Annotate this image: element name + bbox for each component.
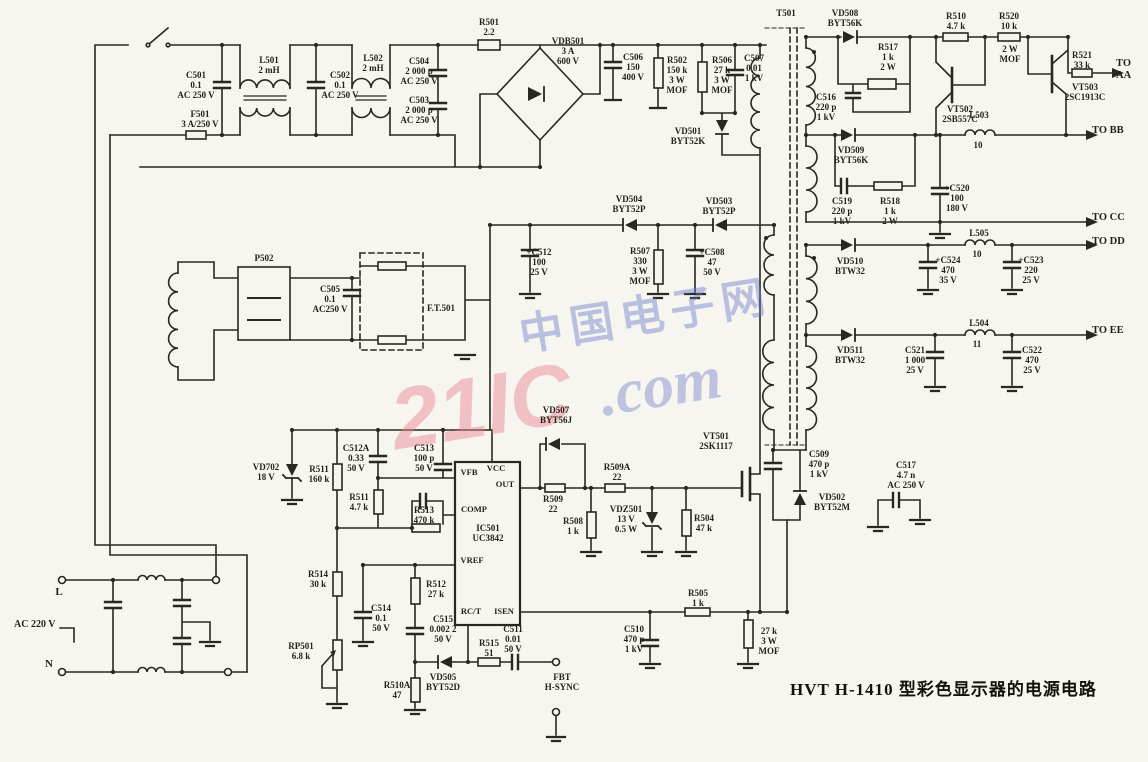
capacitor-plates: [105, 62, 1020, 669]
label-r521: R521 33 k: [1072, 50, 1092, 70]
wires: [60, 28, 1112, 735]
label-l504: L504: [969, 318, 989, 328]
label-vd501: VD501 BYT52K: [671, 126, 706, 146]
label-c521: C521 1 000 25 V: [905, 345, 925, 375]
label-r513: R513 470 k: [414, 505, 435, 525]
label-pin-rct: RC/T: [461, 607, 481, 617]
label-c513: C513 100 p 50 V: [414, 443, 435, 473]
label-l504-val: 11: [973, 339, 982, 349]
schematic-caption: HVT H-1410 型彩色显示器的电源电路: [790, 681, 1097, 700]
label-vd702: VD702 18 V: [253, 462, 280, 482]
label-l505: L505: [969, 228, 989, 238]
label-c512: +C512 100 25 V: [526, 247, 551, 277]
label-r514: R514 30 k: [308, 569, 328, 589]
label-c514: C514 0.1 50 V: [371, 603, 391, 633]
label-vd507: VD507 BYT56J: [540, 405, 572, 425]
label-l505-val: 10: [973, 249, 982, 259]
label-r502: R502 150 k 3 W MOF: [667, 55, 688, 95]
label-r520: R520 10 k: [999, 11, 1019, 31]
transistor-symbols: [742, 56, 1052, 500]
schematic-page: C501 0.1 AC 250 VF501 3 A/250 VL501 2 mH…: [0, 0, 1148, 762]
label-r515: R515 51: [479, 638, 499, 658]
label-vd502: VD502 BYT52M: [814, 492, 850, 512]
label-term-l: L: [55, 586, 62, 598]
label-r518: R518 1 k 2 W: [880, 196, 900, 226]
label-vt501: VT501 2SK1117: [699, 431, 733, 451]
label-rp501: RP501 6.8 k: [288, 641, 314, 661]
label-pin-vref: VREF: [460, 556, 483, 566]
label-p502: P502: [255, 253, 274, 263]
label-c509: C509 470 p 1 kV: [809, 449, 830, 479]
label-r509: R509 22: [543, 494, 563, 514]
label-c508: +C508 47 50 V: [699, 247, 724, 277]
label-vdz501: VDZ501 13 V 0.5 W: [610, 504, 643, 534]
label-fbt: FBT H-SYNC: [545, 672, 580, 692]
label-c502: C502 0.1 AC 250 V: [321, 70, 358, 100]
label-c507: C507 0.01 1 kV: [744, 53, 764, 83]
label-vd509: VD509 BYT56K: [834, 145, 869, 165]
label-to-aa: TO AA: [1116, 58, 1148, 82]
label-r504: R504 47 k: [694, 513, 714, 533]
label-vd510: VD510 BTW32: [835, 256, 865, 276]
label-r507: R507 330 3 W MOF: [630, 246, 651, 286]
label-c512a: C512A 0.33 50 V: [343, 443, 370, 473]
label-c511: C511 0.01 50 V: [503, 624, 523, 654]
diode-symbols: [283, 31, 857, 668]
label-r520-rating: 2 W MOF: [1000, 44, 1021, 64]
label-to-bb: TO BB: [1092, 125, 1124, 137]
label-r-27k: 27 k 3 W MOF: [759, 626, 780, 656]
resistor-boxes: [186, 33, 1092, 702]
label-vd504: VD504 BYT52P: [612, 194, 645, 214]
label-ic501: IC501 UC3842: [473, 523, 504, 543]
label-vd511: VD511 BTW32: [835, 345, 865, 365]
label-to-dd: TO DD: [1092, 236, 1125, 248]
label-c505: C505 0.1 AC250 V: [312, 284, 347, 314]
label-pin-comp: COMP: [461, 505, 487, 515]
label-t501: T501: [776, 8, 796, 18]
label-l503-val: 10: [974, 140, 983, 150]
label-pin-vfb: VFB: [461, 468, 478, 478]
output-arrows: [330, 68, 1124, 656]
label-r506: R506 27 k 3 W MOF: [712, 55, 733, 95]
label-r512: R512 27 k: [426, 579, 446, 599]
label-c503: C503 2 000 p AC 250 V: [400, 95, 437, 125]
label-pin-out: OUT: [496, 480, 514, 490]
label-vt503: VT503 2SC1913C: [1065, 82, 1106, 102]
label-r505: R505 1 k: [688, 588, 708, 608]
junction-dots: [111, 35, 1070, 674]
label-pin-vcc: VCC: [487, 464, 505, 474]
label-c510: C510 470 p 1 kV: [624, 624, 645, 654]
label-c519: C519 220 p 1 kV: [832, 196, 853, 226]
label-r517: R517 1 k 2 W: [878, 42, 898, 72]
label-c516: C516 220 p 1 kV: [816, 92, 837, 122]
label-f501: F501 3 A/250 V: [181, 109, 218, 129]
label-c501: C501 0.1 AC 250 V: [177, 70, 214, 100]
label-c522: C522 470 25 V: [1022, 345, 1042, 375]
label-c515: C515 0.002 2 50 V: [430, 614, 457, 644]
label-vdb501: VDB501 3 A 600 V: [552, 36, 585, 66]
label-r510a: R510A 47: [384, 680, 411, 700]
label-c524: +C524 470 35 V: [935, 255, 960, 285]
transformer-t501: [751, 28, 817, 445]
label-to-cc: TO CC: [1092, 212, 1125, 224]
label-l503: L503: [969, 110, 989, 120]
label-vd505: VD505 BYT52D: [426, 672, 460, 692]
label-pin-isen: ISEN: [494, 607, 514, 617]
label-vd503: VD503 BYT52P: [702, 196, 735, 216]
label-r508: R508 1 k: [563, 516, 583, 536]
label-c520: +C520 100 180 V: [944, 183, 969, 213]
label-r510: R510 4.7 k: [946, 11, 966, 31]
label-to-ee: TO EE: [1092, 325, 1124, 337]
label-c523: +C523 220 25 V: [1018, 255, 1043, 285]
label-term-n: N: [45, 658, 53, 670]
label-c517: C517 4.7 n AC 250 V: [887, 460, 924, 490]
label-r511b: R511 4.7 k: [349, 492, 369, 512]
label-r511: R511 160 k: [309, 464, 330, 484]
label-c506: C506 150 400 V: [622, 52, 644, 82]
label-l501: L501 2 mH: [258, 55, 279, 75]
label-c504: C504 2 000 p AC 250 V: [400, 56, 437, 86]
label-vd508: VD508 BYT56K: [828, 8, 863, 28]
label-ft501: F.T.501: [427, 303, 455, 313]
label-r509a: R509A 22: [604, 462, 631, 482]
label-ac-220v: AC 220 V: [14, 619, 55, 630]
label-r501: R501 2.2: [479, 17, 499, 37]
label-l502: L502 2 mH: [362, 53, 383, 73]
